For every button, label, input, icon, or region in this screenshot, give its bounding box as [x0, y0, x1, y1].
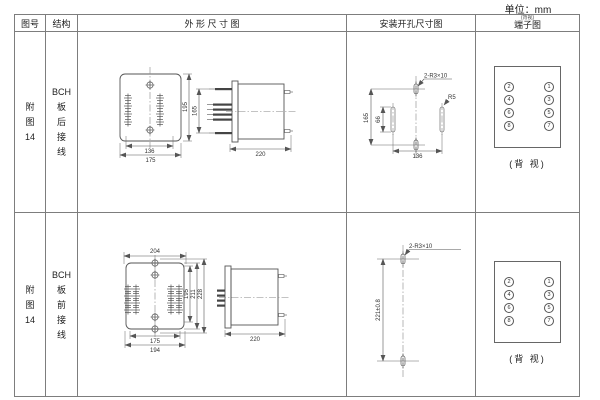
- row2-structure-char: 板: [57, 285, 66, 295]
- dim-label: 175: [145, 158, 156, 164]
- header-fig-no: 图号: [15, 15, 46, 32]
- terminal-block: 2 4 6 8 1 3 5 7: [494, 261, 561, 343]
- row1-mounting-drawing: 165 66 R5 2-R3×10 136: [347, 32, 476, 213]
- terminal-2: 2: [504, 277, 514, 287]
- mounting-screw-icon: [146, 126, 155, 135]
- row1-terminal-cell: 2 4 6 8 1 3 5 7 (背 视): [476, 32, 579, 213]
- row1-structure: BCH 板 后 接 线: [46, 32, 78, 213]
- terminal-6: 6: [504, 303, 514, 313]
- row1-structure-char: 后: [57, 117, 66, 127]
- terminal-3: 3: [544, 95, 554, 105]
- dim-label: 195: [183, 101, 189, 112]
- dim-label: 66: [376, 116, 382, 123]
- rear-view-note: (背 视): [509, 352, 546, 365]
- header-fig-no-label: 图号: [21, 17, 39, 30]
- stud-icon: [279, 314, 285, 317]
- row2-structure-char: 接: [57, 315, 66, 325]
- dim-label: 165: [364, 112, 370, 123]
- row2-terminal-diagram: 2 4 6 8 1 3 5 7 (背 视): [476, 213, 579, 396]
- header-outline-label: 外 形 尺 寸 图: [184, 17, 239, 30]
- dim-label: 228: [198, 288, 204, 299]
- radius-label: R5: [448, 95, 456, 101]
- dim-label: 136: [412, 154, 423, 160]
- stud-icon: [285, 130, 291, 133]
- row2-fig-char: 图: [25, 300, 34, 310]
- mounting-screw-icon: [146, 81, 155, 90]
- row1-structure-char: BCH: [52, 87, 71, 97]
- terminal-2: 2: [504, 82, 514, 92]
- dim-label: 194: [150, 348, 161, 354]
- dim-label: 195: [184, 288, 190, 299]
- terminal-4: 4: [504, 95, 514, 105]
- dim-label: 211: [191, 289, 197, 299]
- terminal-7: 7: [544, 121, 554, 131]
- row2-fig-no: 附 图 14: [15, 213, 46, 396]
- dim-label: 165: [193, 105, 199, 116]
- row2-outline-drawing: 204 195 211 228 175 194: [78, 213, 347, 396]
- row1-fig-char: 图: [25, 117, 34, 127]
- terminal-1: 1: [544, 82, 554, 92]
- terminal-7: 7: [544, 316, 554, 326]
- row1-fig-char: 附: [25, 102, 34, 112]
- mounting-screw-icon: [151, 271, 160, 280]
- header-outline: 外 形 尺 寸 图: [78, 15, 347, 32]
- row2-mounting-drawing: 221±0.8 2-R3×10: [347, 213, 476, 396]
- relay-front-view: [120, 74, 181, 141]
- dim-label: 220: [255, 152, 266, 158]
- header-mounting-label: 安装开孔尺寸图: [379, 17, 442, 30]
- row2-structure-char: BCH: [52, 270, 71, 280]
- row1-structure-char: 板: [57, 102, 66, 112]
- header-structure: 结构: [46, 15, 78, 32]
- terminal-1: 1: [544, 277, 554, 287]
- row2-structure: BCH 板 前 接 线: [46, 213, 78, 396]
- stud-icon: [285, 91, 291, 94]
- slot-note-label: 2-R3×10: [424, 74, 448, 80]
- terminal-5: 5: [544, 108, 554, 118]
- rear-view-note: (背 视): [509, 157, 546, 170]
- row2-terminal-cell: 2 4 6 8 1 3 5 7 (背 视): [476, 213, 579, 396]
- header-terminal-label: 端子图: [514, 21, 541, 30]
- terminal-4: 4: [504, 290, 514, 300]
- terminal-5: 5: [544, 303, 554, 313]
- relay-side-view: [231, 269, 278, 325]
- mounting-screw-icon: [151, 325, 160, 334]
- row1-fig-no: 附 图 14: [15, 32, 46, 213]
- relay-flange: [225, 266, 231, 328]
- row1-outline-cell: 136 175 195 165 220: [78, 32, 347, 213]
- terminal-3: 3: [544, 290, 554, 300]
- terminal-8: 8: [504, 121, 514, 131]
- dim-label: 175: [150, 339, 161, 345]
- row2-outline-cell: 204 195 211 228 175 194: [78, 213, 347, 396]
- dim-label: 220: [250, 337, 261, 343]
- dim-label: 136: [144, 149, 155, 155]
- header-structure-label: 结构: [52, 17, 70, 30]
- row2-fig-char: 附: [25, 285, 34, 295]
- row2-structure-char: 前: [57, 300, 66, 310]
- header-mounting: 安装开孔尺寸图: [347, 15, 476, 32]
- row1-structure-char: 接: [57, 132, 66, 142]
- row2-structure-char: 线: [57, 330, 66, 340]
- slot-note-label: 2-R3×10: [409, 244, 433, 250]
- row1-structure-char: 线: [57, 147, 66, 157]
- stud-icon: [279, 275, 285, 278]
- row1-mounting-cell: 165 66 R5 2-R3×10 136: [347, 32, 476, 213]
- row1-terminal-diagram: 2 4 6 8 1 3 5 7 (背 视): [476, 32, 579, 212]
- terminal-6: 6: [504, 108, 514, 118]
- dimension-table: 图号 结构 外 形 尺 寸 图 安装开孔尺寸图 (背视) 端子图 附 图 14 …: [14, 14, 580, 397]
- dim-label: 221±0.8: [376, 299, 382, 321]
- mounting-screw-icon: [151, 259, 160, 268]
- terminal-block: 2 4 6 8 1 3 5 7: [494, 66, 561, 148]
- terminal-8: 8: [504, 316, 514, 326]
- mounting-screw-icon: [151, 313, 160, 322]
- row2-mounting-cell: 221±0.8 2-R3×10: [347, 213, 476, 396]
- header-terminal: (背视) 端子图: [476, 15, 579, 32]
- row1-outline-drawing: 136 175 195 165 220: [78, 32, 347, 213]
- dim-label: 204: [150, 249, 161, 255]
- row2-fig-char: 14: [25, 315, 35, 325]
- row1-fig-char: 14: [25, 132, 35, 142]
